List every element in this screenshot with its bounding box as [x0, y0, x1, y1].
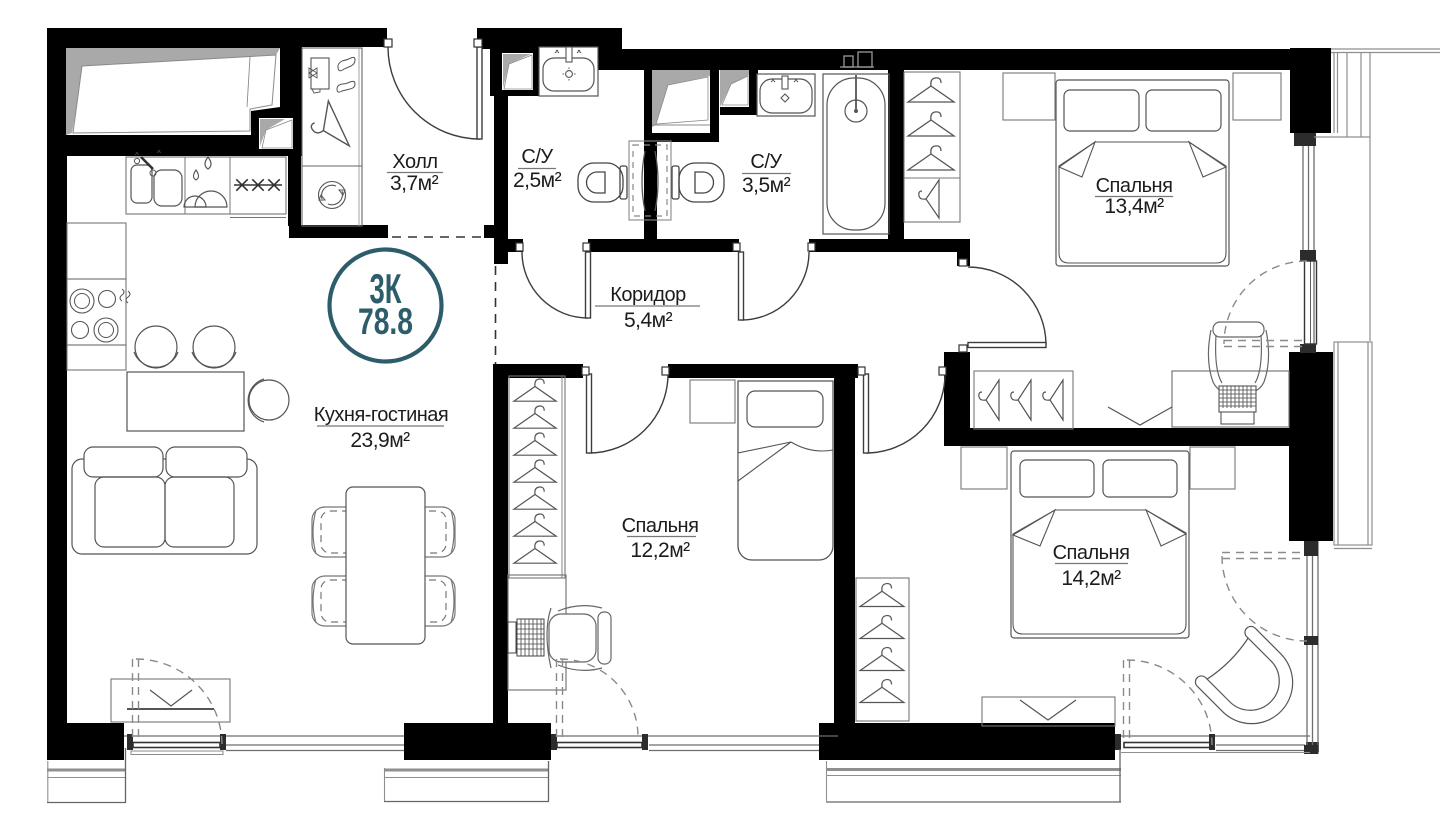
svg-text:23,9м²: 23,9м²	[350, 429, 410, 452]
svg-text:2,5м²: 2,5м²	[513, 169, 562, 192]
svg-text:3,7м²: 3,7м²	[390, 172, 439, 195]
svg-text:Спальня: Спальня	[1096, 175, 1173, 197]
svg-text:Спальня: Спальня	[622, 515, 699, 537]
svg-text:78.8: 78.8	[358, 301, 413, 342]
svg-text:Коридор: Коридор	[610, 284, 686, 306]
svg-text:12,2м²: 12,2м²	[630, 539, 690, 562]
svg-text:С/У: С/У	[750, 151, 782, 173]
svg-text:5,4м²: 5,4м²	[624, 309, 673, 332]
svg-text:3,5м²: 3,5м²	[742, 174, 791, 197]
svg-text:13,4м²: 13,4м²	[1104, 195, 1164, 218]
svg-text:14,2м²: 14,2м²	[1061, 567, 1121, 590]
svg-text:Кухня-гостиная: Кухня-гостиная	[314, 404, 449, 426]
svg-text:Холл: Холл	[392, 151, 437, 173]
svg-text:Спальня: Спальня	[1053, 542, 1130, 564]
svg-text:С/У: С/У	[521, 146, 553, 168]
